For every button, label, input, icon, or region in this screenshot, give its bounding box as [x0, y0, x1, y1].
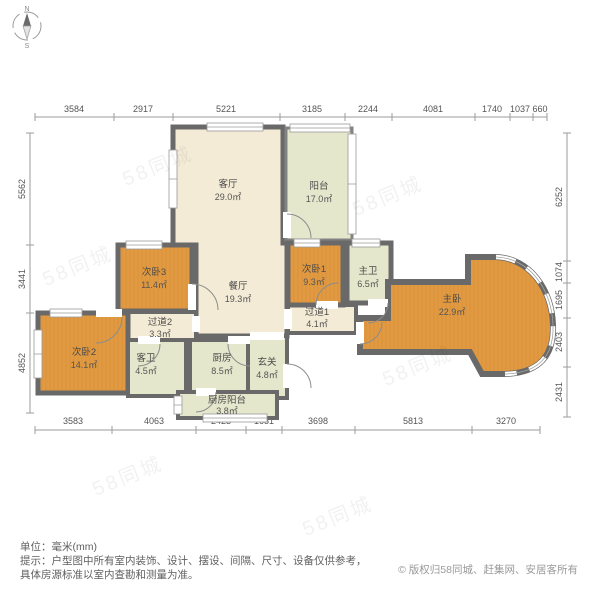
room-area-dining: 19.3㎡ — [225, 294, 252, 304]
compass-north-label: N — [24, 6, 29, 13]
room-label-living: 客厅 — [218, 178, 238, 190]
room-area-kitchen-balcony: 3.8㎡ — [216, 406, 238, 416]
dim-label: 3583 — [63, 416, 83, 426]
dimension-labels-top: 3584 2917 5221 3185 2244 4081 1740 1037 … — [64, 104, 548, 114]
room-label-dining: 餐厅 — [228, 280, 248, 292]
room-label-entry: 玄关 — [257, 356, 277, 368]
dimension-labels-left: 5562 3441 4852 — [17, 179, 27, 373]
room-label-hallway1: 过道1 — [305, 306, 329, 318]
room-label-hallway2: 过道2 — [148, 316, 172, 328]
door-gap — [188, 284, 196, 310]
dim-label: 660 — [532, 104, 547, 114]
dimension-labels-right: 6252 1074 1695 2403 2431 — [554, 187, 564, 402]
dim-label: 3185 — [302, 104, 322, 114]
room-area-guest-bath: 4.5㎡ — [135, 366, 157, 376]
room-label-bedroom3: 次卧3 — [142, 266, 166, 278]
disclaimer-line2: 具体房源标准以室内查勘和测量为准。 — [20, 569, 199, 582]
door-gap — [368, 299, 388, 307]
rooms — [38, 127, 553, 418]
room-area-balcony: 17.0㎡ — [306, 194, 333, 204]
room-area-bedroom1: 9.3㎡ — [303, 277, 325, 287]
floorplan-image: 58同城 58同城 58同城 58同城 58同城 58同城 N S — [0, 0, 600, 600]
room-label-bedroom2: 次卧2 — [72, 346, 96, 358]
dim-label: 4852 — [17, 353, 27, 373]
dim-label: 6252 — [554, 187, 564, 207]
dimension-labels-bottom: 3583 4063 2423 1651 3698 5813 3270 — [63, 416, 516, 426]
room-area-master-bath: 6.5㎡ — [357, 279, 379, 289]
dim-label: 2244 — [358, 104, 378, 114]
dim-label: 5221 — [216, 104, 236, 114]
dim-label: 1074 — [554, 262, 564, 282]
room-label-master-bedroom: 主卧 — [442, 293, 462, 305]
dim-label: 5813 — [403, 416, 423, 426]
dim-label: 4063 — [144, 416, 164, 426]
dim-label: 3270 — [496, 416, 516, 426]
dim-label: 1695 — [554, 290, 564, 310]
room-label-kitchen-balcony: 厨房阳台 — [208, 394, 246, 406]
door-gap — [284, 309, 292, 329]
dim-label: 1037 — [510, 104, 530, 114]
room-area-bedroom2: 14.1㎡ — [71, 360, 98, 370]
room-bedroom3 — [118, 245, 192, 311]
floorplan-svg: N S 3584 2917 5221 3185 2244 4081 1740 1… — [0, 0, 600, 600]
door-gap — [283, 364, 291, 388]
dim-label: 1740 — [482, 104, 502, 114]
room-area-hallway1: 4.1㎡ — [306, 319, 328, 329]
door-gap — [96, 309, 122, 317]
room-label-master-bath: 主卫 — [358, 265, 378, 277]
dim-label: 2917 — [133, 104, 153, 114]
room-label-guest-bath: 客卫 — [136, 352, 156, 364]
dim-label: 3584 — [64, 104, 84, 114]
dim-label: 3441 — [17, 269, 27, 289]
room-label-balcony: 阳台 — [309, 180, 328, 192]
door-gap — [250, 332, 284, 340]
room-area-hallway2: 3.3㎡ — [149, 329, 171, 339]
compass-icon: N S — [13, 6, 41, 50]
door-gap — [192, 316, 200, 332]
dim-label: 4081 — [423, 104, 443, 114]
room-area-bedroom3: 11.4㎡ — [141, 280, 167, 290]
door-gap — [228, 336, 250, 344]
room-area-living: 29.0㎡ — [215, 192, 242, 202]
room-area-entry: 4.8㎡ — [256, 370, 278, 380]
copyright-notice: © 版权归58同城、赶集网、安居客所有 — [398, 562, 578, 577]
dim-label: 3698 — [308, 416, 328, 426]
room-area-master-bedroom: 22.9㎡ — [439, 307, 466, 317]
dim-label: 2431 — [554, 382, 564, 402]
room-label-kitchen: 厨房 — [212, 352, 231, 364]
unit-note: 单位：毫米(mm) — [20, 541, 97, 554]
disclaimer-line1: 提示：户型图中所有室内装饰、设计、摆设、间隔、尺寸、设备仅供参考， — [20, 555, 367, 568]
door-gap — [283, 212, 291, 238]
door-gap — [356, 322, 364, 344]
room-label-bedroom1: 次卧1 — [302, 263, 326, 275]
dim-label: 5562 — [17, 179, 27, 199]
room-area-kitchen: 8.5㎡ — [211, 366, 233, 376]
compass-south-label: S — [25, 43, 30, 50]
